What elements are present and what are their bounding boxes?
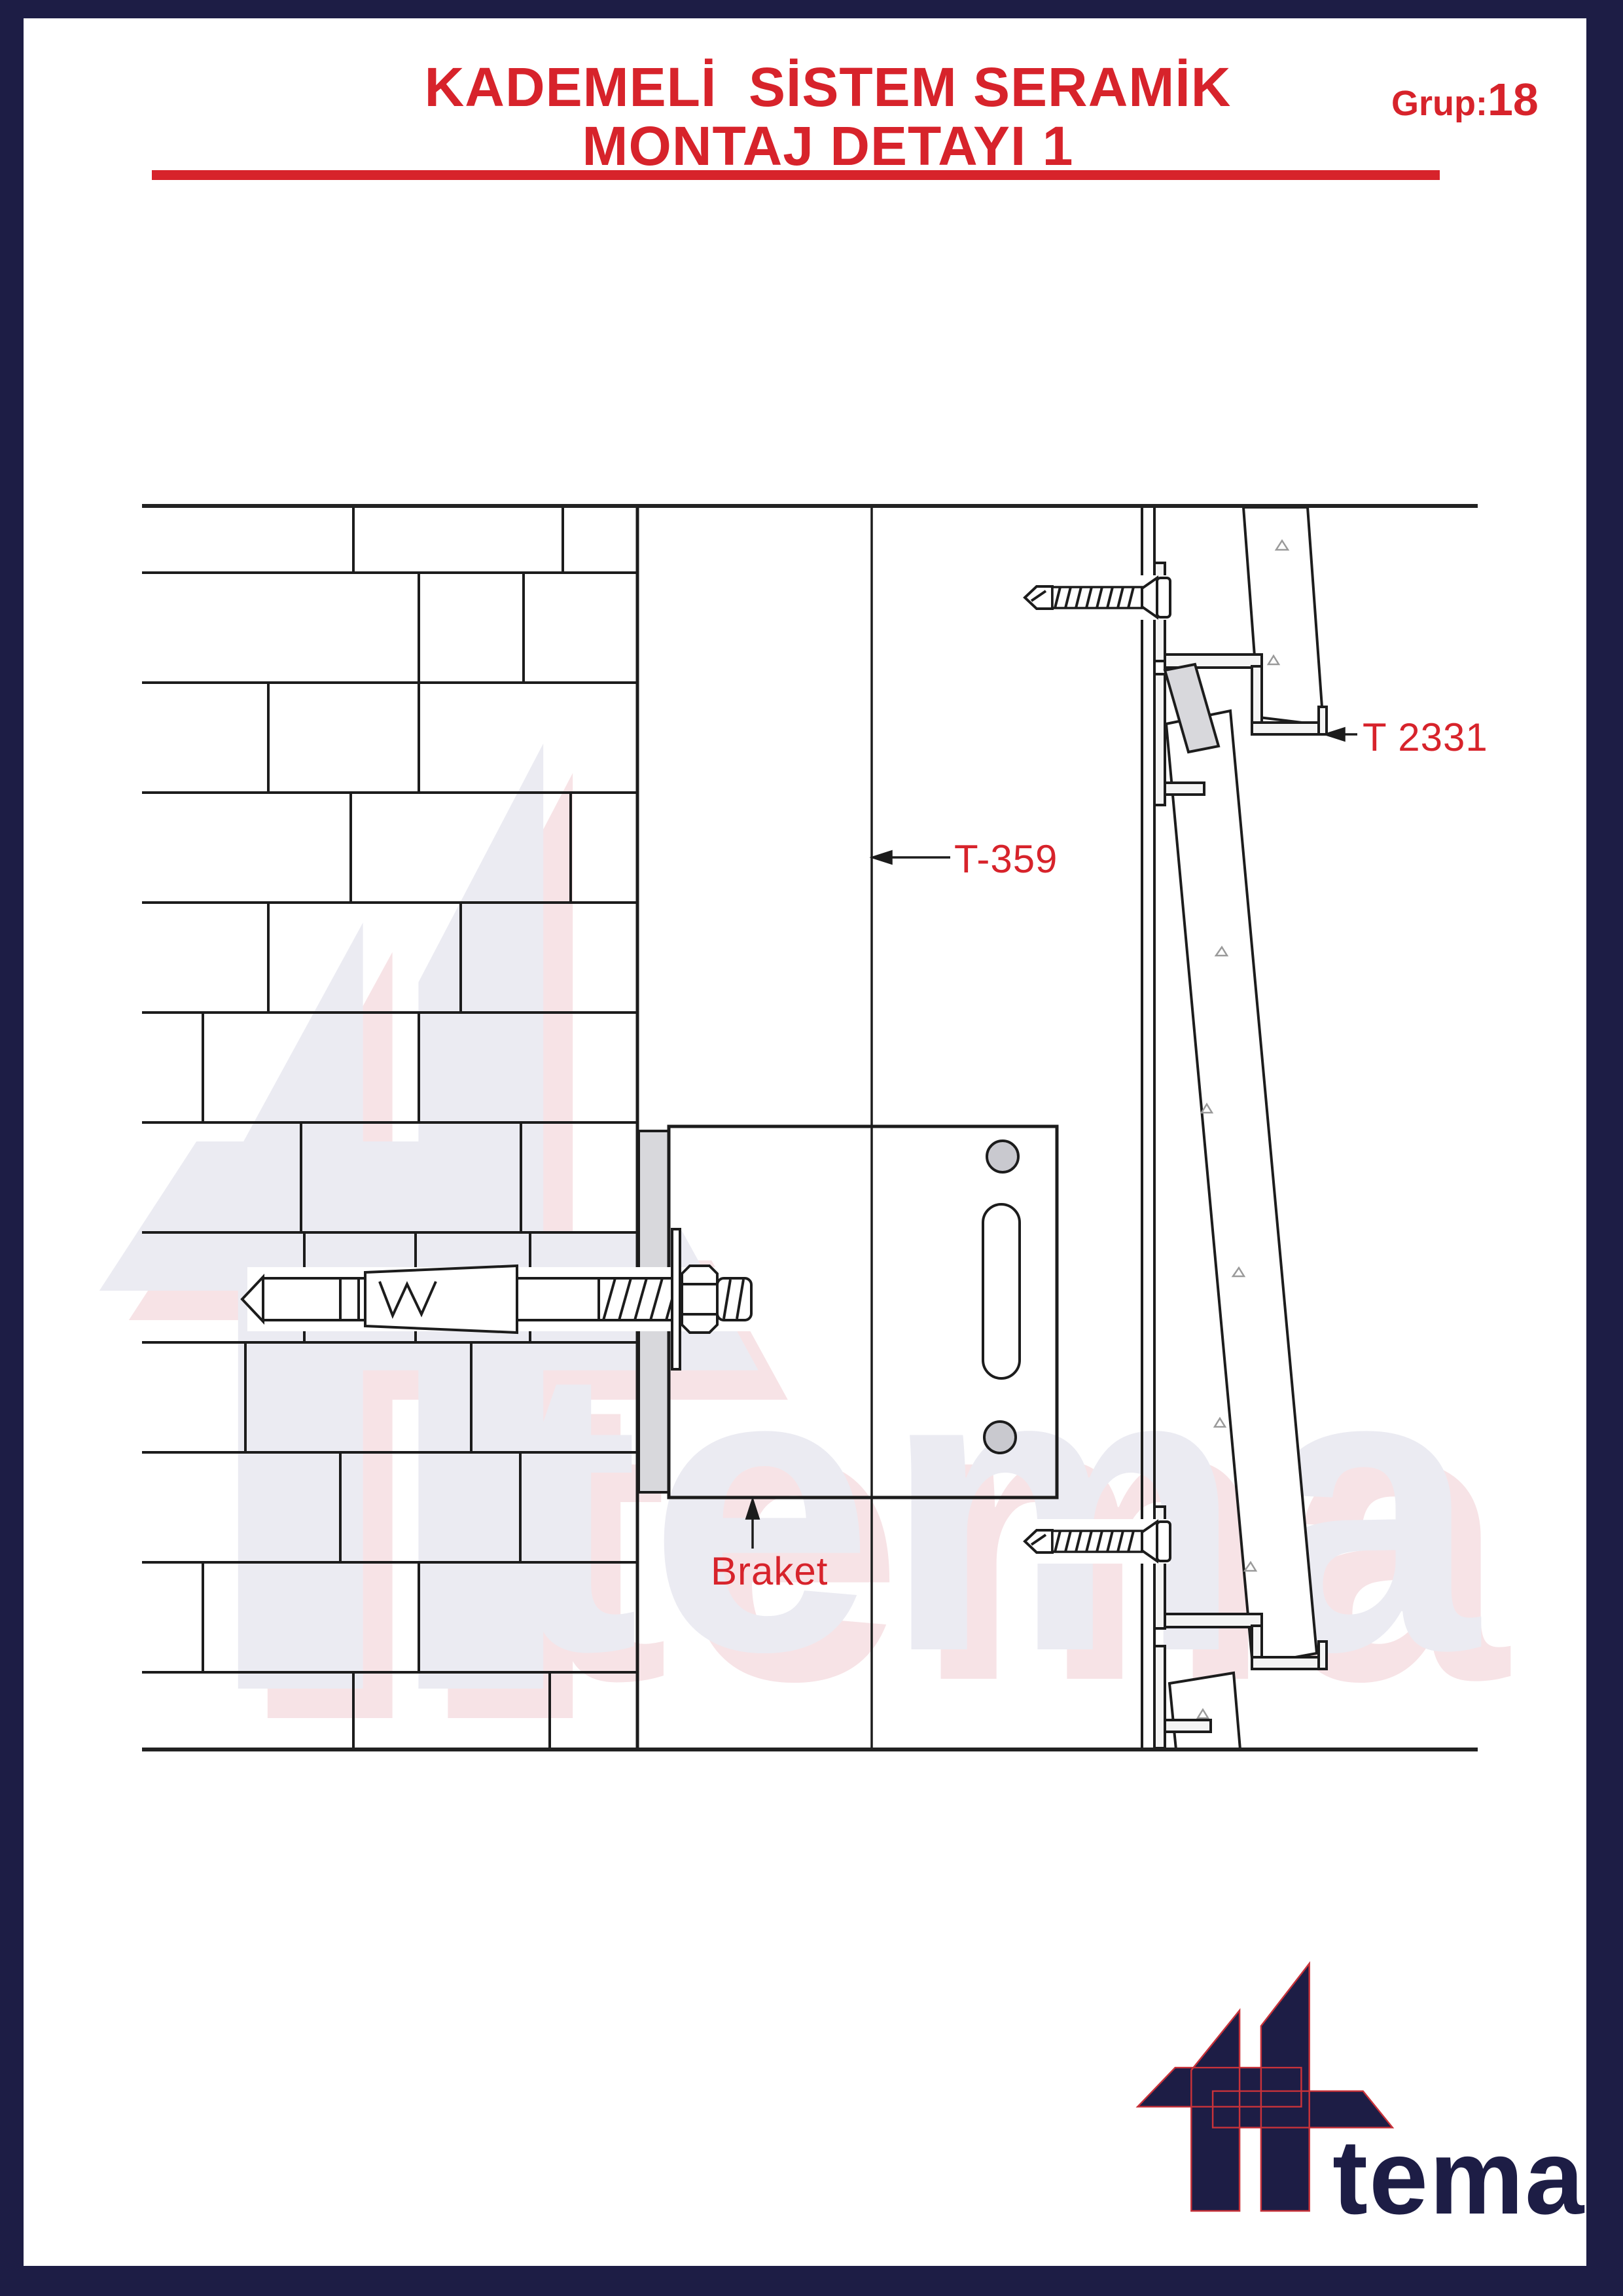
nut bbox=[682, 1266, 717, 1333]
screw-top bbox=[1025, 575, 1170, 620]
bracket-hole-bottom bbox=[984, 1422, 1016, 1453]
washer bbox=[672, 1229, 680, 1369]
tema-logo-text: tema bbox=[1332, 2117, 1585, 2238]
bracket-hole-top bbox=[987, 1141, 1018, 1172]
screw-bottom bbox=[1025, 1519, 1170, 1564]
label-t359: T-359 bbox=[954, 836, 1058, 882]
technical-drawing: tema tema bbox=[0, 0, 1623, 2296]
bracket-slot bbox=[983, 1204, 1020, 1378]
label-t2331: T 2331 bbox=[1363, 715, 1488, 760]
label-braket: Braket bbox=[711, 1549, 828, 1594]
